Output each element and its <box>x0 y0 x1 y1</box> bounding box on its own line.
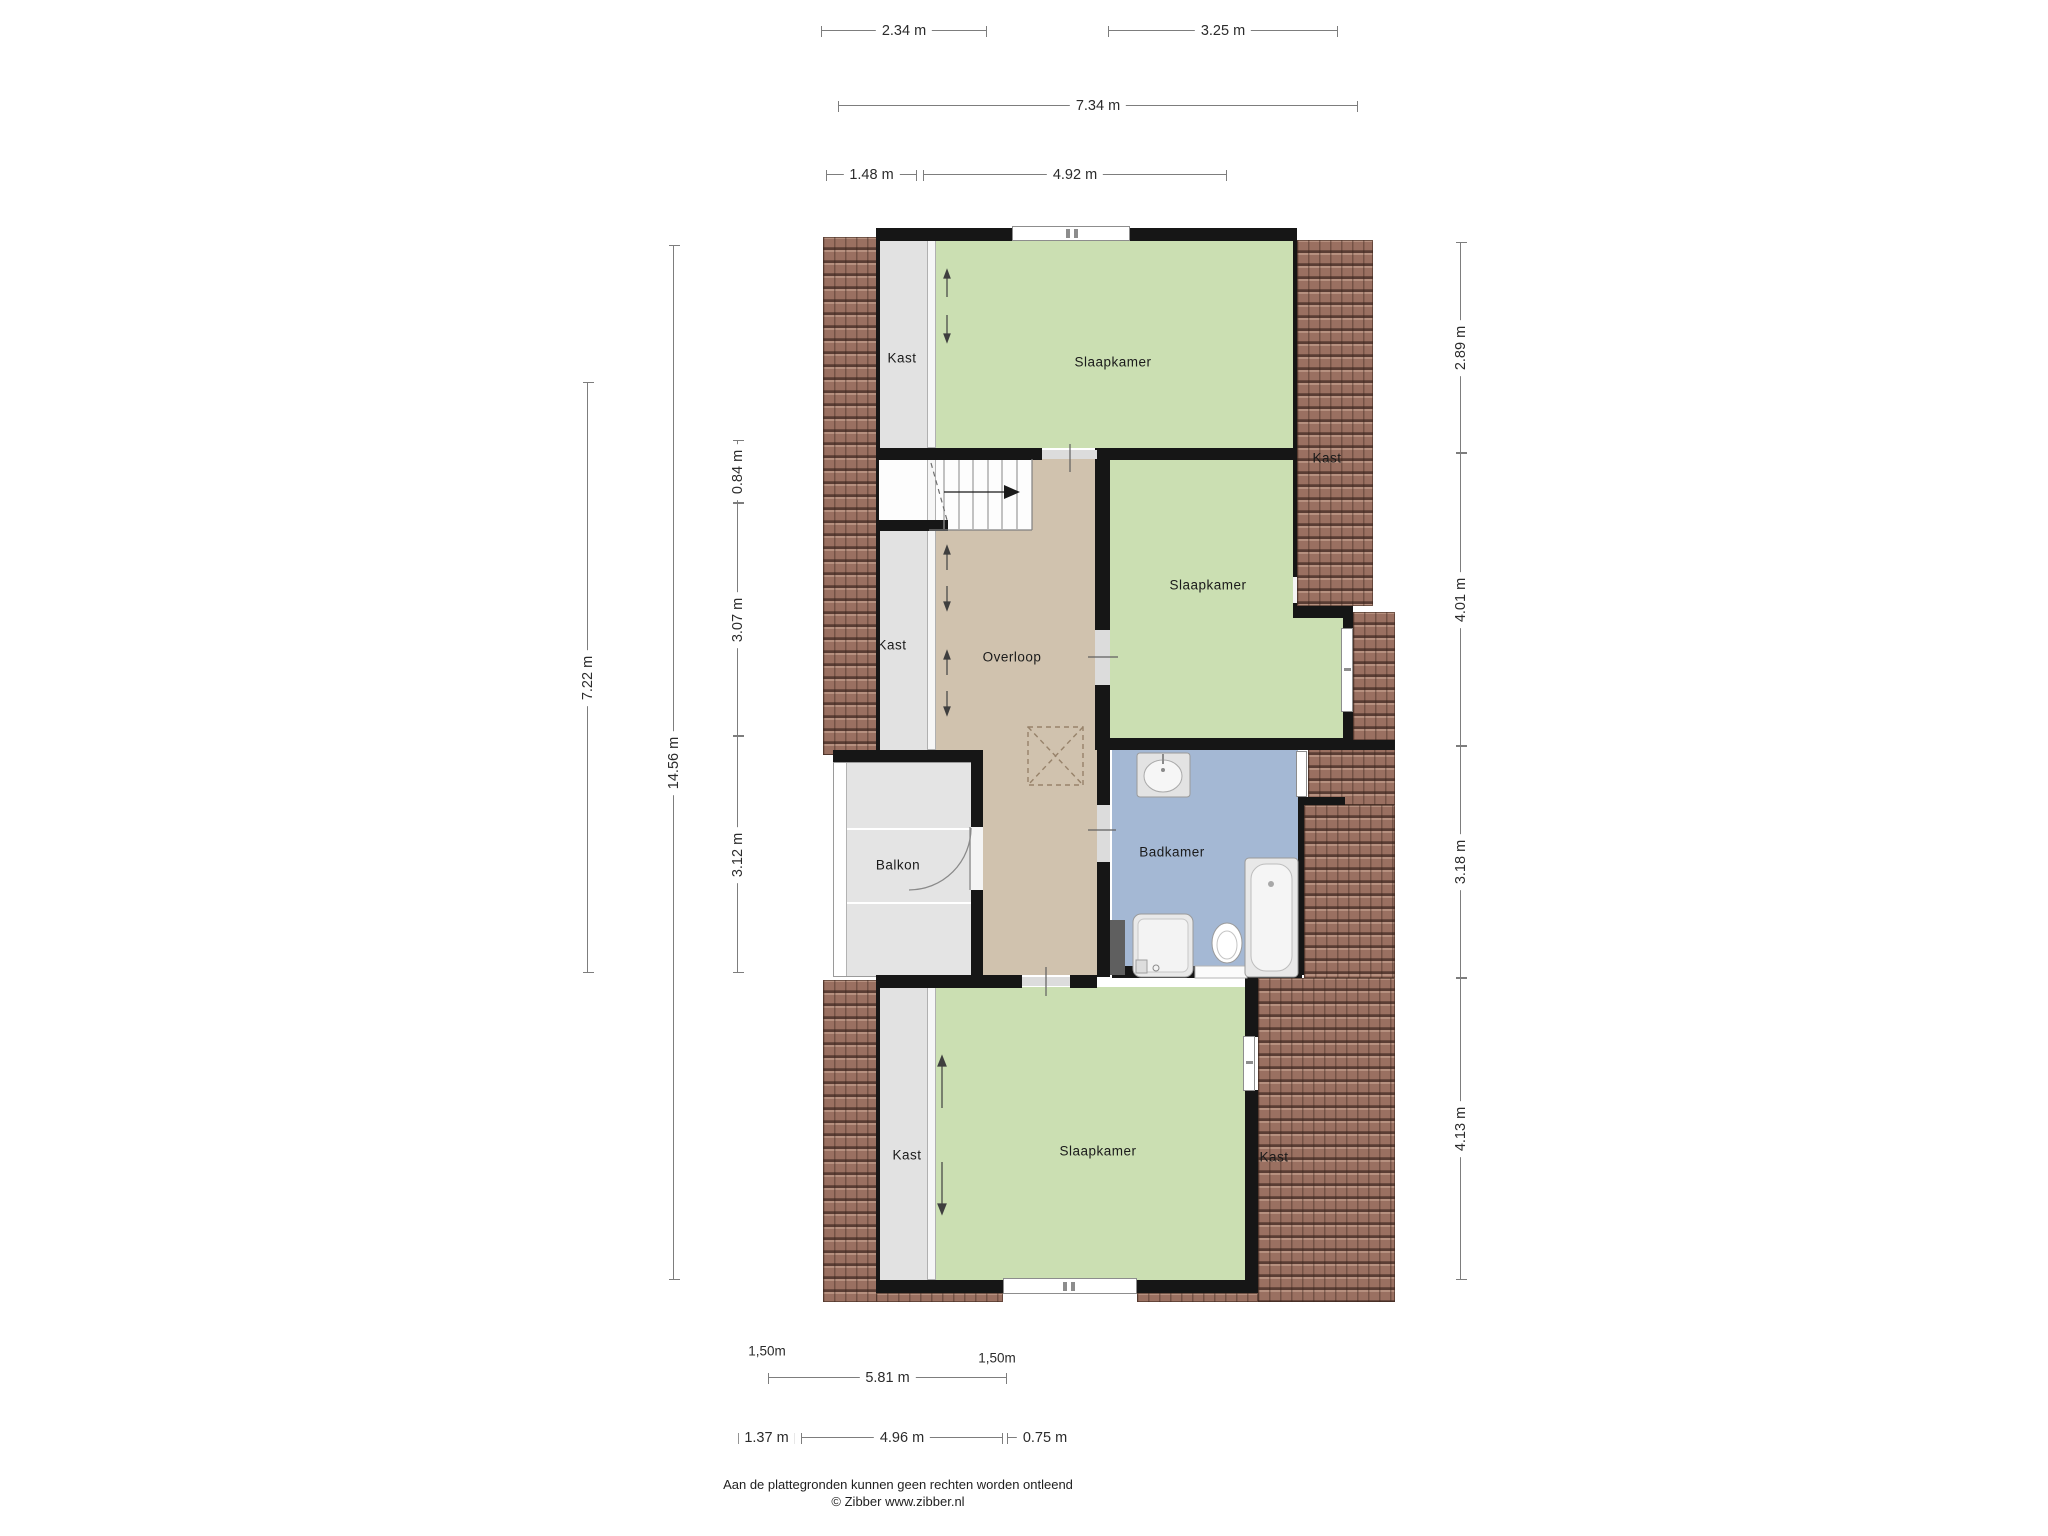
wall-balcony-top <box>833 750 983 762</box>
label-closet-bottom-left: Kast <box>892 1148 921 1163</box>
roof-right-notch <box>1353 612 1395 742</box>
dim-top-2_34: 2.34 m <box>821 30 987 31</box>
dim-tick <box>1456 1279 1467 1280</box>
wall-bottom-left <box>876 1280 1003 1293</box>
dim-label: 4.01 m <box>1453 571 1469 627</box>
dim-tick <box>733 736 744 737</box>
dim-left-7_22: 7.22 m <box>587 382 588 973</box>
wall-bed1-bottom-right <box>1097 448 1297 460</box>
dim-label: 2.89 m <box>1453 319 1469 375</box>
label-landing: Overloop <box>983 650 1042 665</box>
dim-tick <box>1006 1373 1007 1384</box>
dim-tick <box>1456 746 1467 747</box>
dim-left-0_84: 0.84 m <box>737 440 738 503</box>
balcony-rail-left <box>834 763 847 976</box>
dim-label: 4.13 m <box>1453 1101 1469 1157</box>
label-closet-right-bottom: Kast <box>1259 1150 1288 1165</box>
wall-landing-bed2-b <box>1095 685 1110 750</box>
dim-tick <box>733 503 744 504</box>
wall-niche-left <box>876 459 879 520</box>
dim-left-3_12: 3.12 m <box>737 736 738 973</box>
dim-tick <box>801 1433 802 1444</box>
roof-bottom-band-right <box>1137 1293 1258 1302</box>
dim-label: 5.81 m <box>859 1370 915 1386</box>
wall-under-bath-window <box>1298 797 1345 805</box>
window-top-mark-a <box>1066 229 1070 238</box>
dim-tick <box>768 1373 769 1384</box>
balcony-line-1 <box>847 828 973 830</box>
dim-top-3_25: 3.25 m <box>1108 30 1338 31</box>
wall-bottom-right <box>1137 1280 1258 1293</box>
dim-left-3_07: 3.07 m <box>737 503 738 736</box>
dim-top-1_48: 1.48 m <box>826 174 917 175</box>
door-bedroom-bottom <box>1022 977 1070 986</box>
floor-plan-page: Kast Slaapkamer Kast Slaapkamer Kast Ove… <box>0 0 2048 1536</box>
window-top-mark-b <box>1074 229 1078 238</box>
dim-label: 3.07 m <box>730 591 746 647</box>
wall-bed12-right-b <box>1293 603 1297 618</box>
room-closet-top-left <box>880 240 927 448</box>
dim-label: 3.25 m <box>1195 23 1251 39</box>
label-closet-top-left: Kast <box>887 351 916 366</box>
roof-right-bathroom <box>1304 805 1395 978</box>
wall-bed1-bottom-left <box>876 448 1042 460</box>
dim-label: 2.34 m <box>876 23 932 39</box>
room-bedroom-bottom <box>935 987 1245 1280</box>
dim-tick <box>583 382 594 383</box>
wall-closet3-left <box>876 987 880 1280</box>
wall-balcony-b <box>971 890 983 977</box>
dim-bottom-5_81: 5.81 m <box>768 1377 1007 1378</box>
roof-right-mid <box>1308 742 1395 805</box>
label-bedroom-bottom: Slaapkamer <box>1059 1144 1136 1159</box>
dim-tick <box>583 972 594 973</box>
door-bedroom-top <box>1042 450 1097 459</box>
dim-label: 4.92 m <box>1047 167 1103 183</box>
dim-top-7_34: 7.34 m <box>838 105 1358 106</box>
wall-bed12-right-a <box>1293 240 1297 577</box>
dim-tick <box>1456 453 1467 454</box>
window-top <box>1012 226 1130 241</box>
dim-bottom-150-right: 1,50m <box>978 1351 1016 1366</box>
room-bathroom <box>1112 750 1298 977</box>
dim-label: 4.96 m <box>874 1430 930 1446</box>
dim-bottom-0_75: 0.75 m <box>1007 1437 1045 1438</box>
wall-landing-bath-b <box>1097 862 1110 977</box>
dim-tick <box>1337 26 1338 37</box>
room-landing-lower <box>983 750 1097 975</box>
dim-tick <box>1002 1433 1003 1444</box>
door-balcony-opening <box>971 827 983 890</box>
dim-tick <box>1007 1433 1008 1444</box>
footer-credit: © Zibber www.zibber.nl <box>831 1494 964 1509</box>
dim-right-2_89: 2.89 m <box>1460 242 1461 453</box>
room-closet-bottom-left <box>880 987 927 1280</box>
wall-bathroom-top <box>1095 738 1343 750</box>
dim-label: 3.18 m <box>1453 834 1469 890</box>
wall-bathroom-bottom <box>1112 966 1302 978</box>
dim-tick <box>733 440 744 441</box>
dim-label: 0.84 m <box>730 443 746 499</box>
dim-bottom-4_96: 4.96 m <box>801 1437 1003 1438</box>
dim-label: 7.22 m <box>580 649 596 705</box>
dim-top-4_92: 4.92 m <box>923 174 1227 175</box>
window-bedmid-mark <box>1344 668 1351 671</box>
wall-landing-bath-a <box>1097 750 1110 805</box>
dim-tick <box>1456 978 1467 979</box>
wall-bed3-right-b <box>1245 1090 1258 1280</box>
wall-bed3-right-a <box>1245 978 1258 1037</box>
label-closet-mid-left: Kast <box>877 638 906 653</box>
dim-tick <box>821 26 822 37</box>
wall-notch-win-top <box>1343 612 1353 628</box>
dim-tick <box>733 972 744 973</box>
wall-top-left <box>876 228 1012 241</box>
sliding-door-bottom-left <box>927 987 936 1280</box>
wall-landing-bottom-b <box>1070 975 1097 988</box>
label-balcony: Balkon <box>876 858 920 873</box>
dim-label: 7.34 m <box>1070 98 1126 114</box>
dim-bottom-1_37: 1.37 m <box>738 1437 795 1438</box>
wall-balcony-a <box>971 750 983 827</box>
room-bedroom-middle-lower <box>1108 612 1343 738</box>
dim-bottom-150-left: 1,50m <box>748 1344 786 1359</box>
room-bedroom-top <box>935 240 1293 448</box>
wall-bath-right <box>1298 805 1304 975</box>
dim-label: 14.56 m <box>666 730 682 794</box>
roof-left-top <box>823 237 880 755</box>
wall-closet1-left <box>876 240 880 448</box>
door-bedroom-middle <box>1095 630 1110 685</box>
label-bedroom-top: Slaapkamer <box>1074 355 1151 370</box>
wall-notch-win-bottom <box>1343 712 1353 740</box>
dim-tick <box>923 170 924 181</box>
wall-notch-bottom <box>1343 740 1395 750</box>
footer-disclaimer: Aan de plattegronden kunnen geen rechten… <box>723 1477 1073 1492</box>
window-bathroom <box>1296 751 1307 797</box>
sliding-door-mid-left <box>927 459 936 750</box>
sliding-door-top-left <box>927 240 936 448</box>
dim-tick <box>669 245 680 246</box>
door-knee-closet <box>1293 577 1297 603</box>
wall-stair-bottom <box>876 520 948 531</box>
dim-tick <box>1108 26 1109 37</box>
label-closet-right-top: Kast <box>1312 451 1341 466</box>
dim-tick <box>1456 242 1467 243</box>
dim-tick <box>1226 170 1227 181</box>
window-bedbot-mark <box>1246 1061 1253 1064</box>
roof-left-bottom <box>823 980 880 1302</box>
dim-right-4_01: 4.01 m <box>1460 453 1461 746</box>
door-bathroom <box>1097 805 1110 862</box>
dim-tick <box>1357 101 1358 112</box>
window-bottom-mark-a <box>1063 1282 1067 1291</box>
stair-niche <box>879 459 929 520</box>
dim-label: 1.48 m <box>843 167 899 183</box>
label-bathroom: Badkamer <box>1139 845 1205 860</box>
wall-top-right <box>1130 228 1297 241</box>
window-bottom-mark-b <box>1071 1282 1075 1291</box>
roof-right-bottom <box>1258 978 1395 1302</box>
roof-bottom-band-left <box>876 1293 1003 1302</box>
dim-tick <box>826 170 827 181</box>
label-bedroom-middle: Slaapkamer <box>1169 578 1246 593</box>
dim-tick <box>838 101 839 112</box>
wall-landing-bed2-a <box>1095 448 1110 630</box>
wall-closet3-top <box>876 975 935 988</box>
window-bottom <box>1003 1278 1137 1294</box>
dim-tick <box>916 170 917 181</box>
dim-right-3_18: 3.18 m <box>1460 746 1461 978</box>
dim-left-14_56: 14.56 m <box>673 245 674 1280</box>
dim-tick <box>986 26 987 37</box>
balcony-line-2 <box>847 902 973 904</box>
dim-label: 0.75 m <box>1017 1430 1073 1446</box>
dim-label: 1.37 m <box>738 1430 794 1446</box>
dim-label: 3.12 m <box>730 826 746 882</box>
dim-right-4_13: 4.13 m <box>1460 978 1461 1280</box>
roof-right-top <box>1297 240 1373 606</box>
dim-tick <box>669 1279 680 1280</box>
